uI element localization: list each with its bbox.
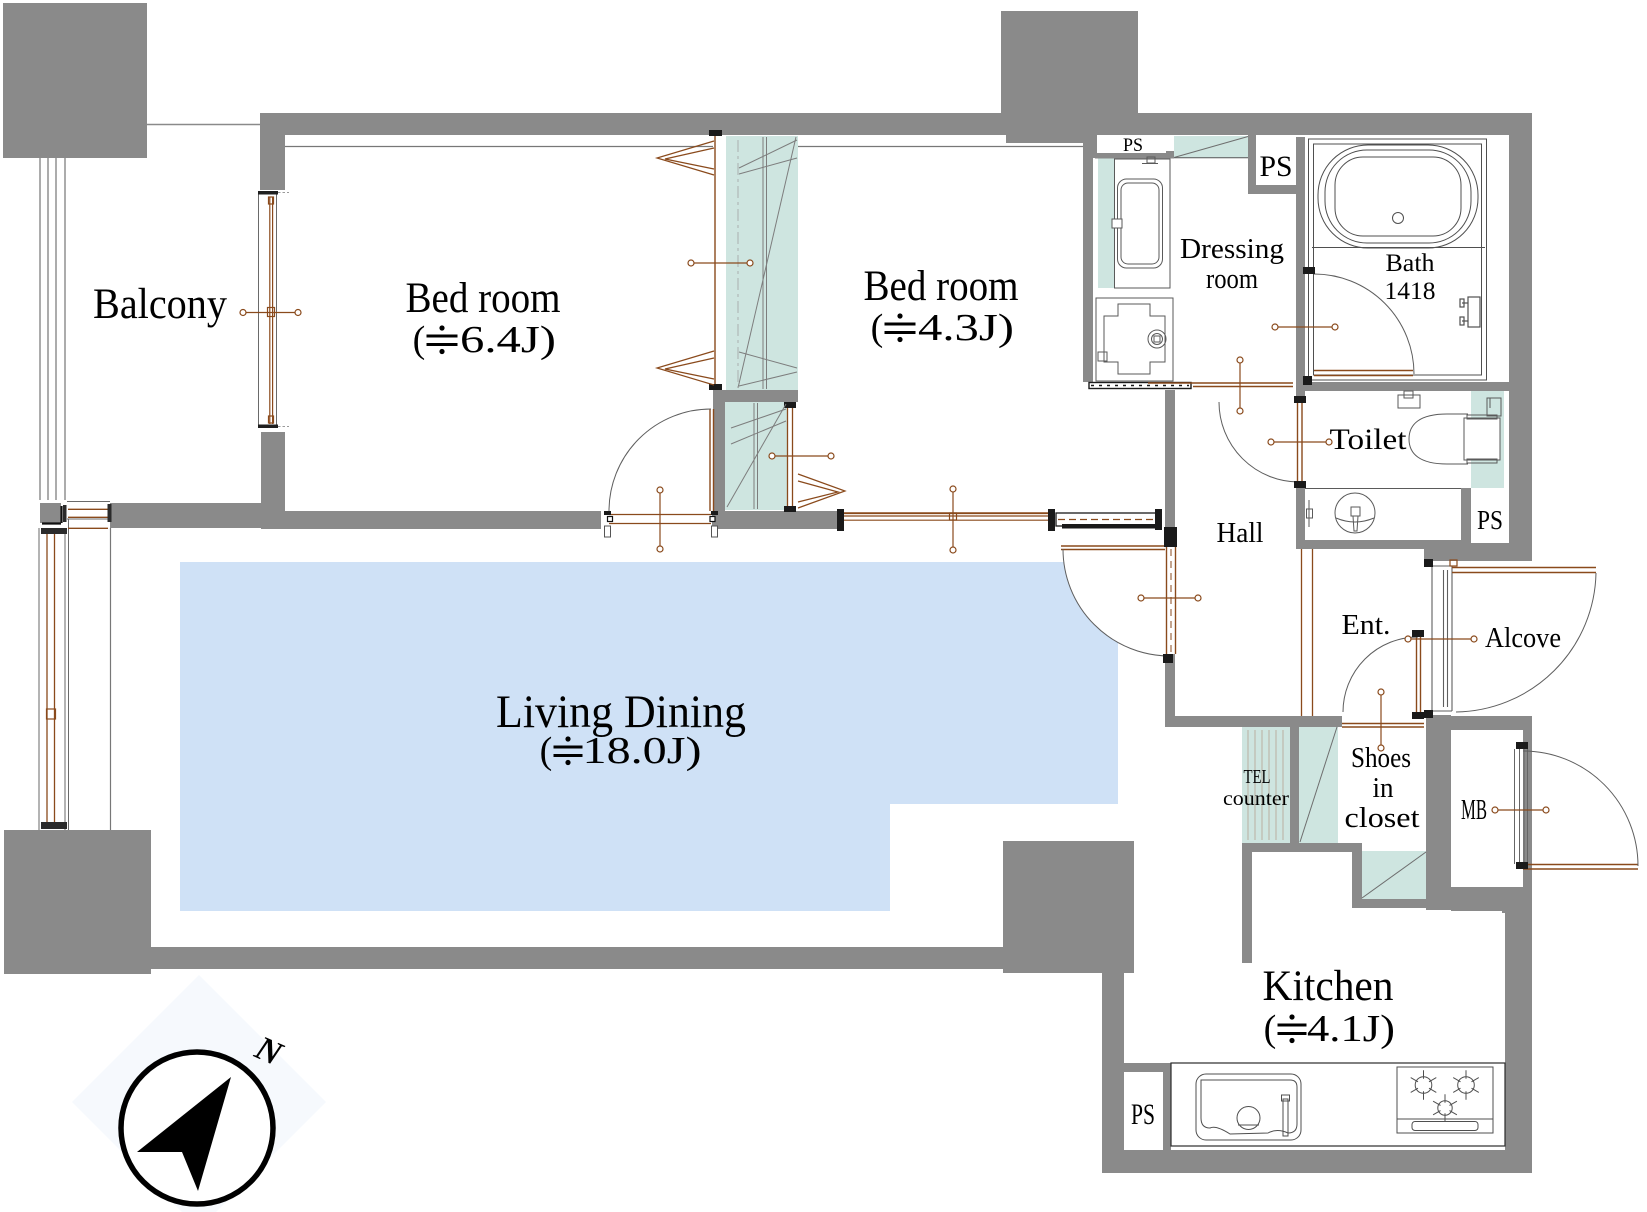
svg-text:PS: PS [1260,150,1293,183]
svg-text:closet: closet [1345,803,1420,834]
svg-text:Toilet: Toilet [1330,423,1408,456]
svg-text:(: ( [1264,1008,1277,1050]
svg-text:TEL: TEL [1244,766,1271,788]
svg-text:4.1J): 4.1J) [1307,1008,1395,1050]
svg-text:4.3J): 4.3J) [918,307,1014,349]
svg-text:1418: 1418 [1385,278,1436,305]
svg-text:Dressing: Dressing [1180,234,1284,265]
svg-text:Ent.: Ent. [1342,609,1391,641]
svg-text:Balcony: Balcony [93,281,227,328]
svg-text:in: in [1373,773,1394,804]
svg-text:Bath: Bath [1386,250,1436,277]
svg-text:PS: PS [1477,505,1503,535]
svg-text:room: room [1206,264,1258,295]
svg-text:Alcove: Alcove [1485,623,1561,654]
svg-text:Hall: Hall [1217,518,1264,549]
svg-text:Bed room: Bed room [406,275,561,322]
svg-text:6.4J): 6.4J) [460,319,556,361]
svg-text:(: ( [413,319,426,361]
svg-text:Bed room: Bed room [864,263,1019,310]
svg-text:MB: MB [1461,795,1487,826]
svg-text:(: ( [871,307,884,349]
svg-text:Shoes: Shoes [1351,743,1411,774]
svg-text:counter: counter [1223,788,1289,810]
svg-text:18.0J): 18.0J) [583,730,702,772]
svg-text:Kitchen: Kitchen [1263,963,1394,1010]
svg-text:PS: PS [1131,1098,1155,1131]
svg-text:(: ( [540,730,553,772]
svg-text:PS: PS [1123,135,1143,156]
